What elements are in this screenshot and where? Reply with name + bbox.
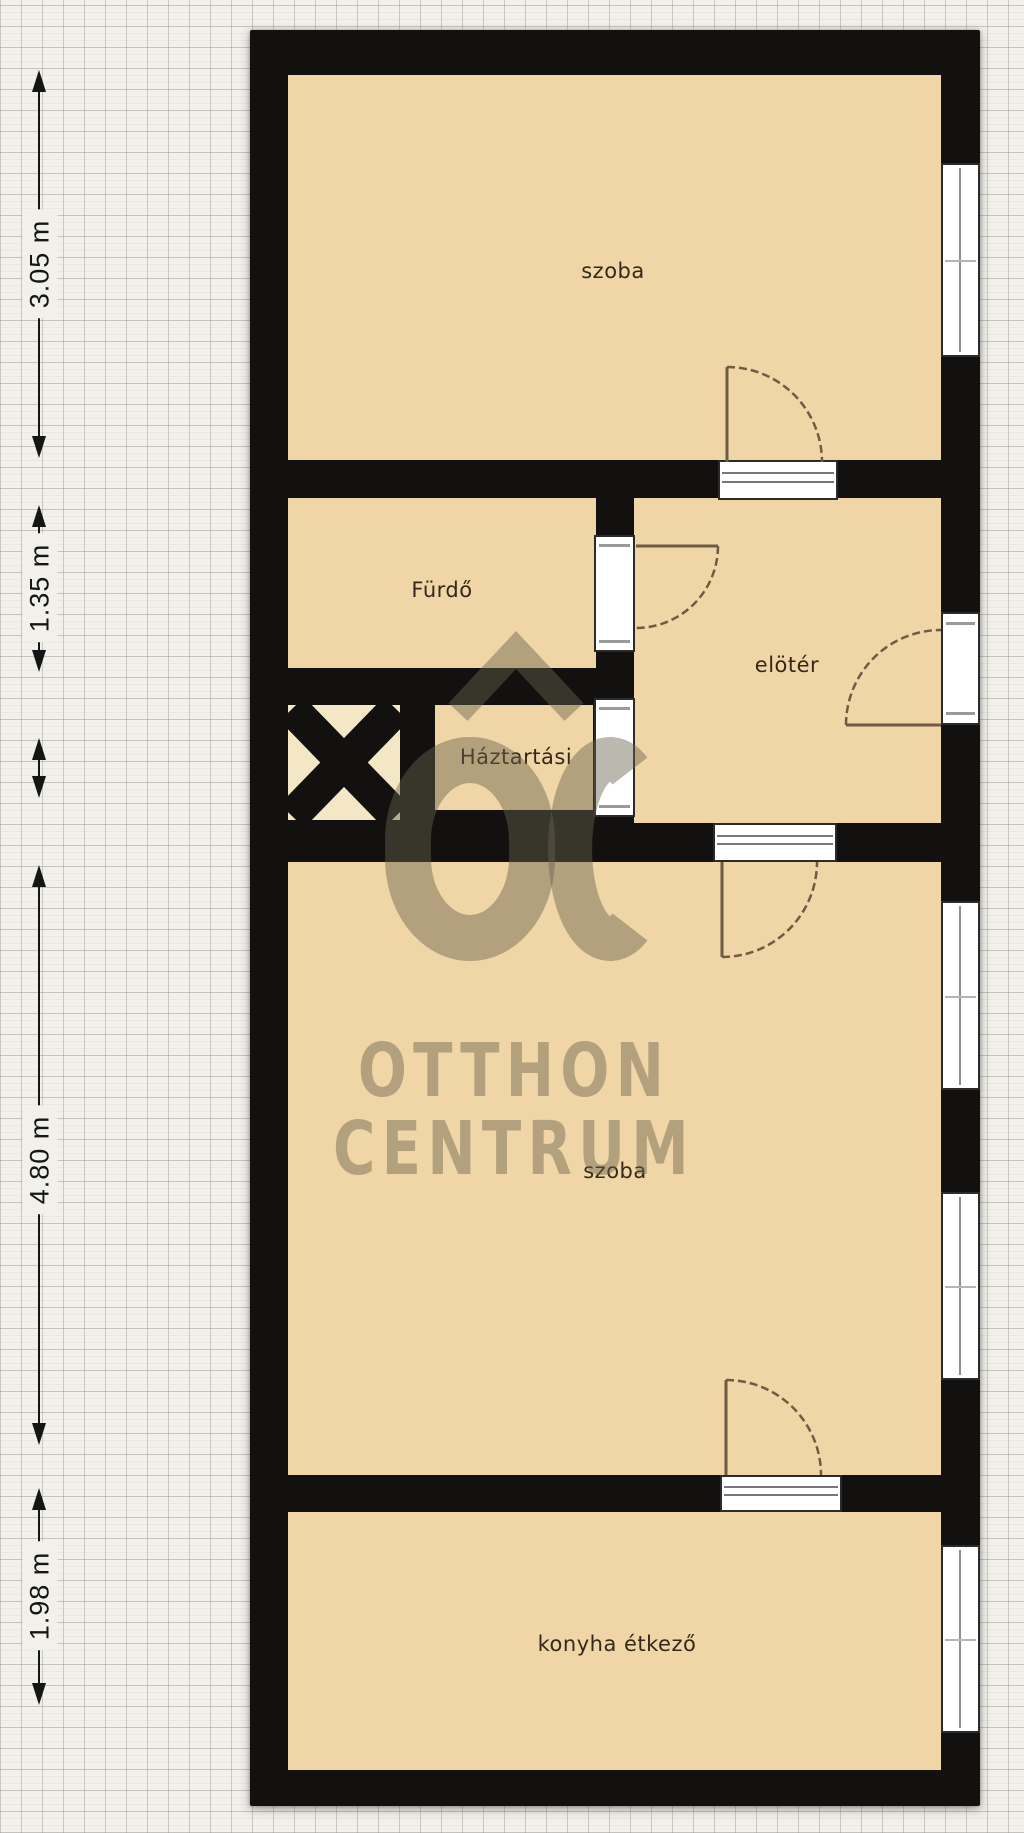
floor-plan-page: 3.05 m 1.35 m 4.80 m 1.98 m (0, 0, 1024, 1833)
watermark-house-oc-logo-icon (0, 0, 1024, 1833)
watermark-text-centrum: CENTRUM (333, 1106, 695, 1192)
watermark-text-otthon: OTTHON (358, 1028, 670, 1114)
